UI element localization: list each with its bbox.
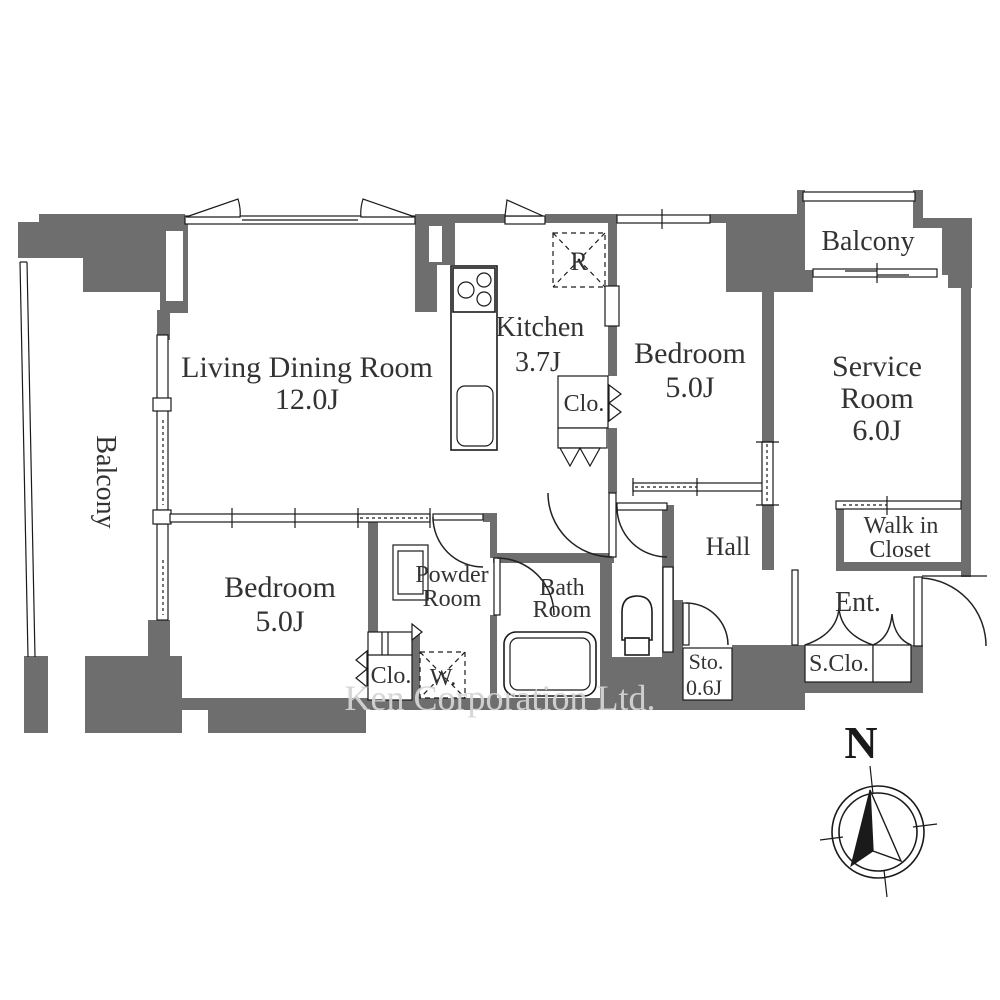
shelf xyxy=(558,428,607,448)
entrance-door-leaf xyxy=(914,577,922,646)
shoe-closet-box xyxy=(873,645,911,682)
label-closet-kitchen: Clo. xyxy=(564,391,605,417)
window xyxy=(170,514,358,522)
label-refrigerator: R xyxy=(570,247,588,276)
label-wic-1: Walk in xyxy=(864,513,939,539)
label-powder-1: Powder xyxy=(415,562,488,588)
door-leaf xyxy=(617,503,667,510)
room-label-bedroom-north: Bedroom xyxy=(634,337,746,370)
door-leaf xyxy=(683,603,689,645)
room-label-bedroom-west: Bedroom xyxy=(224,571,336,604)
label-balcony-west: Balcony xyxy=(90,435,121,528)
label-balcony-ne: Balcony xyxy=(821,226,914,257)
door-leaf xyxy=(494,558,500,615)
room-label-living-dining: Living Dining Room xyxy=(181,351,433,384)
door-leaf xyxy=(433,514,483,520)
room-size-living-dining: 12.0J xyxy=(275,383,340,416)
entrance-step xyxy=(792,570,798,645)
room-size-service: 6.0J xyxy=(852,414,902,447)
label-storage-size: 0.6J xyxy=(686,675,723,700)
label-entrance: Ent. xyxy=(835,587,881,618)
label-powder-2: Room xyxy=(423,586,482,612)
room-size-kitchen: 3.7J xyxy=(515,347,561,378)
toilet-icon xyxy=(622,596,652,655)
watermark: Ken Corporation Ltd. xyxy=(345,678,656,718)
pipe-space xyxy=(429,226,442,262)
room-label-service-1: Service xyxy=(832,350,922,383)
background xyxy=(0,0,1000,1000)
window xyxy=(813,269,937,277)
label-shoe-closet: S.Clo. xyxy=(809,651,869,677)
compass-north-label: N xyxy=(844,717,877,768)
label-bath-2: Room xyxy=(533,597,592,623)
wall-panel xyxy=(605,286,619,326)
label-wic-2: Closet xyxy=(869,537,931,563)
balcony-railing xyxy=(803,192,915,201)
door-leaf xyxy=(609,493,616,557)
label-storage: Sto. xyxy=(689,649,724,674)
sink-icon xyxy=(457,386,493,446)
cabinet xyxy=(663,567,673,652)
sliding-door xyxy=(633,483,763,491)
pipe-space xyxy=(166,231,183,301)
window xyxy=(617,215,710,223)
label-hall: Hall xyxy=(706,532,751,561)
room-label-service-2: Room xyxy=(840,382,913,415)
room-size-bedroom-north: 5.0J xyxy=(665,371,715,404)
sliding-door xyxy=(836,501,961,509)
room-label-kitchen: Kitchen xyxy=(496,312,585,343)
floor-plan: Living Dining Room 12.0J Kitchen 3.7J R … xyxy=(0,0,1000,1000)
window xyxy=(505,216,545,224)
room-size-bedroom-west: 5.0J xyxy=(255,605,305,638)
